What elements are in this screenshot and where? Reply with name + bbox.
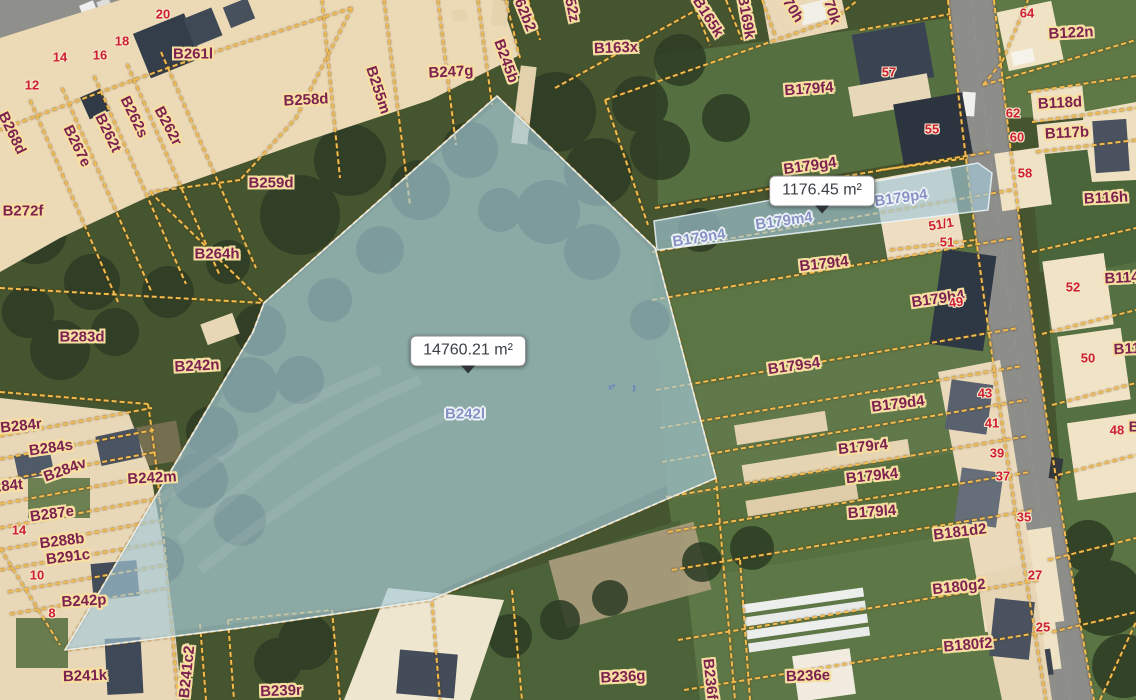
area-tooltip-main: 14760.21 m² <box>410 336 526 367</box>
parcel-label[interactable]: B287e <box>29 503 75 524</box>
parcel-label[interactable]: B179d4 <box>871 393 926 414</box>
parcel-label[interactable]: B11 <box>1113 341 1136 357</box>
house-number: 62 <box>1006 107 1020 120</box>
area-value-main: 14760.21 m² <box>423 342 513 359</box>
house-number: 60 <box>1010 131 1024 144</box>
parcel-label[interactable]: B283d <box>59 330 104 345</box>
house-number: 27 <box>1028 569 1042 582</box>
parcel-label[interactable]: B247g <box>428 63 474 80</box>
house-number: 64 <box>1020 7 1034 20</box>
house-number: 52 <box>1066 281 1080 294</box>
parcel-label[interactable]: B245b <box>491 37 520 84</box>
parcel-label[interactable]: 52z <box>562 0 582 23</box>
house-number: 14 <box>12 524 26 537</box>
parcel-label[interactable]: B262r <box>152 104 185 148</box>
parcel-label[interactable]: B258d <box>283 91 329 108</box>
parcel-label[interactable]: B284s <box>28 437 74 458</box>
selected-parcel-label[interactable]: B242l <box>445 407 485 422</box>
parcel-label[interactable]: B179k4 <box>845 466 899 486</box>
parcel-label[interactable]: B236g <box>600 668 646 685</box>
parcel-label[interactable]: 62b2 <box>512 0 539 34</box>
house-number: 16 <box>93 49 107 62</box>
labels-layer: 2018161412B261lB268dB267eB262tB262sB262r… <box>0 0 1136 700</box>
parcel-label[interactable]: B114 <box>1104 270 1136 287</box>
parcel-label[interactable]: B179l4 <box>847 503 896 521</box>
house-number: 14 <box>53 51 67 64</box>
parcel-label[interactable]: B261l <box>173 47 213 62</box>
house-number: 20 <box>156 8 170 21</box>
parcel-label[interactable]: B242p <box>61 592 107 609</box>
parcel-label[interactable]: B268d <box>0 109 29 156</box>
selected-parcel-label[interactable]: B179p4 <box>874 187 929 209</box>
selected-parcel-label[interactable]: B179n4 <box>671 226 726 249</box>
house-number: 8 <box>48 607 55 620</box>
parcel-label[interactable]: B117b <box>1045 124 1090 141</box>
parcel-label[interactable]: B242m <box>127 469 177 487</box>
area-value-secondary: 1176.45 m² <box>782 182 862 199</box>
parcel-label[interactable]: B181d2 <box>933 521 988 542</box>
house-number: 55 <box>925 123 939 136</box>
parcel-label[interactable]: B262s <box>118 94 151 140</box>
house-number: 57 <box>882 66 896 79</box>
survey-mark: ¦i <box>632 386 635 393</box>
parcel-label[interactable]: B239r <box>260 683 302 699</box>
house-number: 10 <box>30 569 44 582</box>
parcel-label[interactable]: B179g4 <box>783 155 838 177</box>
parcel-label[interactable]: 284t <box>0 477 24 495</box>
house-number: 49 <box>948 295 964 310</box>
house-number: 25 <box>1036 621 1050 634</box>
house-number: 37 <box>996 470 1010 483</box>
parcel-label[interactable]: B264h <box>194 247 239 262</box>
parcel-label[interactable]: B272f <box>3 204 44 219</box>
parcel-label[interactable]: B180g2 <box>932 577 987 597</box>
parcel-label[interactable]: B116h <box>1084 189 1129 206</box>
parcel-label[interactable]: B236f <box>700 658 719 700</box>
parcel-label[interactable]: B165k <box>690 0 726 40</box>
survey-mark: x³' <box>608 385 615 392</box>
parcel-label[interactable]: B179s4 <box>767 355 821 377</box>
parcel-label[interactable]: B255m <box>363 64 392 115</box>
parcel-label[interactable]: 70k <box>821 0 843 26</box>
parcel-label[interactable]: B118d <box>1038 94 1083 111</box>
parcel-label[interactable]: B241k <box>63 668 108 685</box>
parcel-label[interactable]: B180f2 <box>943 635 993 654</box>
parcel-label[interactable]: B241c2 <box>177 645 197 699</box>
house-number: 12 <box>25 79 39 92</box>
parcel-label[interactable]: B179r4 <box>837 437 888 457</box>
parcel-label[interactable]: B262t <box>92 111 123 154</box>
house-number: 18 <box>115 35 129 48</box>
selected-parcel-label[interactable]: B179m4 <box>754 210 813 233</box>
house-number: 39 <box>990 447 1004 460</box>
tooltip-pointer <box>815 206 829 214</box>
parcel-label[interactable]: B169k <box>735 0 757 40</box>
map-viewport[interactable]: 2018161412B261lB268dB267eB262tB262sB262r… <box>0 0 1136 700</box>
parcel-label[interactable]: B291c <box>45 547 91 567</box>
parcel-label[interactable]: B <box>1129 420 1136 435</box>
parcel-label[interactable]: 70h <box>780 0 806 25</box>
parcel-label[interactable]: B284r <box>0 416 43 435</box>
parcel-label[interactable]: B236e <box>786 668 831 685</box>
house-number: 50 <box>1081 352 1095 365</box>
house-number: 48 <box>1110 424 1124 437</box>
tooltip-pointer <box>461 366 475 374</box>
parcel-label[interactable]: B179t4 <box>799 254 850 274</box>
house-number: 43 <box>978 387 992 400</box>
parcel-label[interactable]: B242n <box>174 357 220 374</box>
house-number: 35 <box>1017 511 1031 524</box>
area-tooltip-secondary: 1176.45 m² <box>769 176 875 207</box>
house-number: 51/1 <box>927 215 954 232</box>
parcel-label[interactable]: B259d <box>248 176 293 191</box>
house-number: 58 <box>1018 167 1032 180</box>
parcel-label[interactable]: B163x <box>594 40 639 57</box>
parcel-label[interactable]: B284v <box>42 455 89 484</box>
parcel-label[interactable]: B122n <box>1048 24 1094 41</box>
parcel-label[interactable]: B267e <box>61 123 94 169</box>
parcel-label[interactable]: B179f4 <box>784 80 834 98</box>
house-number: 41 <box>985 417 999 430</box>
house-number: 51 <box>940 236 954 249</box>
